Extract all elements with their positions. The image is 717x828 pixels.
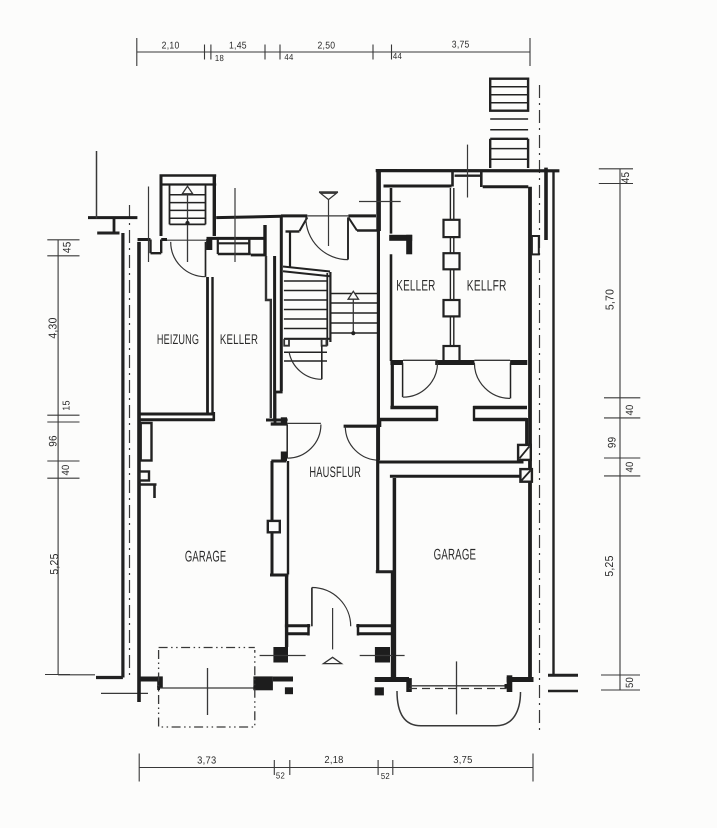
svg-text:2,18: 2,18 <box>324 755 343 766</box>
svg-text:5,70: 5,70 <box>605 289 617 310</box>
svg-text:40: 40 <box>624 461 636 472</box>
svg-text:96: 96 <box>48 435 60 447</box>
svg-text:5,25: 5,25 <box>604 555 616 576</box>
svg-text:1,45: 1,45 <box>229 40 247 51</box>
svg-text:GARAGE: GARAGE <box>434 547 477 564</box>
svg-text:40: 40 <box>60 464 72 475</box>
svg-text:50: 50 <box>624 677 636 688</box>
svg-text:18: 18 <box>215 53 224 63</box>
svg-text:3,75: 3,75 <box>453 755 472 766</box>
svg-text:HAUSFLUR: HAUSFLUR <box>309 464 361 481</box>
svg-text:KELLFR: KELLFR <box>467 277 507 294</box>
svg-text:99: 99 <box>607 437 619 449</box>
svg-text:KELLER: KELLER <box>396 278 435 295</box>
svg-text:4,30: 4,30 <box>48 317 60 338</box>
svg-text:HEIZUNG: HEIZUNG <box>157 331 199 347</box>
svg-text:45: 45 <box>61 242 73 254</box>
svg-text:3,73: 3,73 <box>197 755 216 766</box>
svg-text:KELLER: KELLER <box>220 331 258 347</box>
svg-text:15: 15 <box>62 400 73 411</box>
svg-text:3,75: 3,75 <box>452 40 470 51</box>
svg-text:45: 45 <box>620 172 632 184</box>
svg-text:40: 40 <box>624 404 636 415</box>
svg-text:2,10: 2,10 <box>162 40 180 51</box>
svg-text:44: 44 <box>393 51 402 61</box>
svg-text:52: 52 <box>381 771 390 781</box>
svg-text:52: 52 <box>276 771 285 781</box>
svg-text:GARAGE: GARAGE <box>185 549 227 566</box>
svg-text:2,50: 2,50 <box>317 40 335 51</box>
svg-text:44: 44 <box>284 52 293 62</box>
svg-text:5,25: 5,25 <box>49 553 61 574</box>
